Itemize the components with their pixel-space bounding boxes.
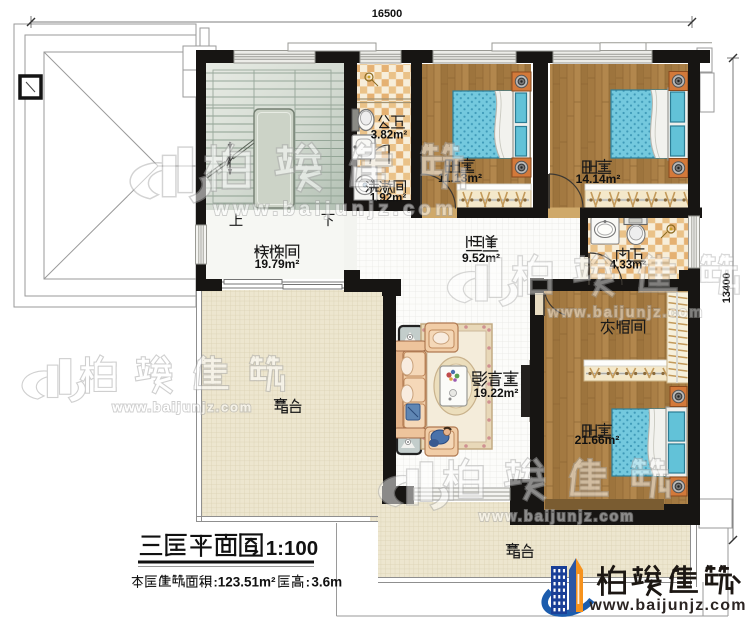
svg-text:14.14m²: 14.14m² [576, 172, 621, 186]
svg-text:19.22m²: 19.22m² [474, 386, 519, 400]
svg-text:www.baijunjz.com: www.baijunjz.com [588, 597, 746, 614]
svg-text:www.baijunjz.com: www.baijunjz.com [212, 198, 457, 220]
svg-text:www.baijunjz.com: www.baijunjz.com [111, 400, 253, 415]
svg-text:19.79m²: 19.79m² [255, 257, 300, 271]
svg-text:3.6m: 3.6m [311, 575, 342, 590]
svg-text:16500: 16500 [372, 8, 403, 20]
svg-text:123.51m²: 123.51m² [218, 575, 276, 590]
svg-text:21.66m²: 21.66m² [575, 433, 620, 447]
svg-text:www.baijunjz.com: www.baijunjz.com [478, 509, 635, 525]
svg-text:1:100: 1:100 [266, 537, 318, 560]
svg-text::: : [306, 576, 310, 590]
svg-text:www.baijunjz.com: www.baijunjz.com [547, 305, 704, 321]
svg-text:3.82m²: 3.82m² [371, 130, 408, 142]
